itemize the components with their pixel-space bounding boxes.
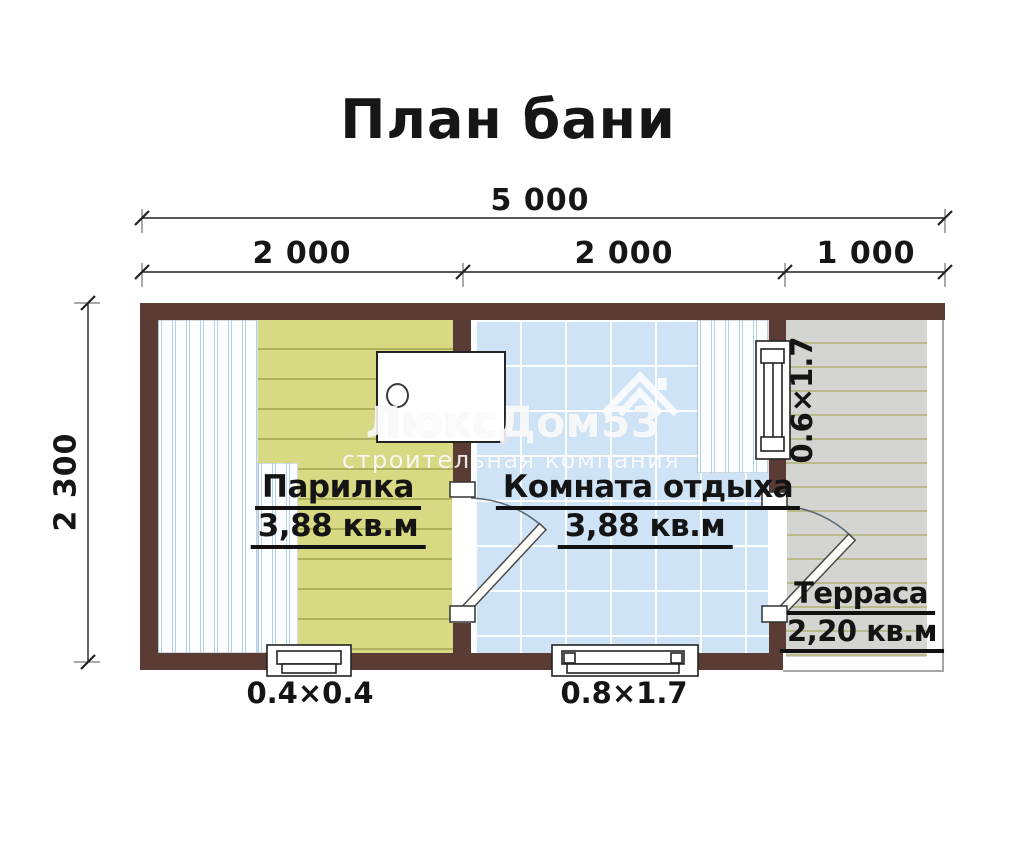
door2-swing-arc bbox=[784, 506, 852, 537]
door1-leaf bbox=[462, 524, 546, 614]
room-name-steam: Парилка bbox=[255, 469, 421, 510]
window-small-symbol bbox=[267, 645, 351, 676]
room-area-rest: 3,88 кв.м bbox=[558, 508, 733, 549]
window-side-label: 0.6×1.7 bbox=[785, 336, 819, 463]
door1-opening bbox=[452, 497, 472, 607]
dim-total-width: 5 000 bbox=[491, 183, 590, 218]
watermark-brand: ЛюксДом53 bbox=[365, 398, 660, 448]
window-large-label: 0.8×1.7 bbox=[560, 676, 687, 710]
window-large-symbol bbox=[552, 645, 698, 676]
dim-segment-2: 2 000 bbox=[575, 236, 674, 271]
room-name-terrace: Терраса bbox=[787, 576, 935, 615]
dim-segment-3: 1 000 bbox=[817, 236, 916, 271]
dim-segment-1: 2 000 bbox=[253, 236, 352, 271]
door1-jamb-bottom bbox=[450, 606, 475, 622]
room-area-steam: 3,88 кв.м bbox=[251, 508, 426, 549]
window-small-label: 0.4×0.4 bbox=[246, 676, 373, 710]
room-area-terrace: 2,20 кв.м bbox=[780, 614, 944, 653]
door2-opening bbox=[768, 507, 787, 607]
floor-plan-canvas: План бани bbox=[0, 0, 1024, 853]
room-name-rest: Комната отдыха bbox=[496, 469, 800, 510]
dim-height: 2 300 bbox=[49, 433, 84, 532]
door1-jamb-top bbox=[450, 482, 475, 497]
